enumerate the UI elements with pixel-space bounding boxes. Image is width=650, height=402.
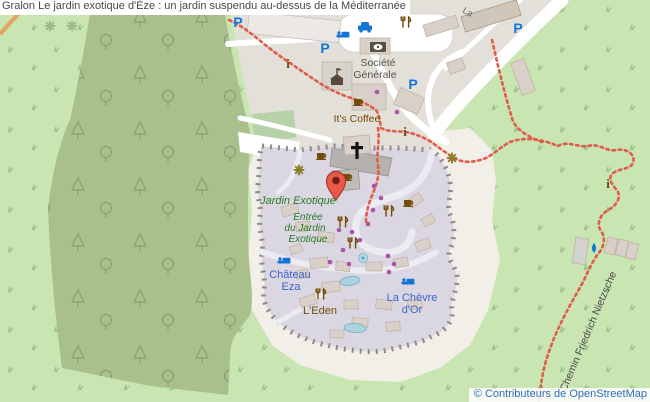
cafe-building: [352, 84, 386, 110]
restaurant-label: L'Eden: [303, 305, 337, 317]
attraction-icon: [295, 166, 304, 175]
parking-icon: P: [320, 40, 329, 56]
cafe-icon: [353, 99, 363, 106]
information-icon: i: [286, 56, 290, 71]
cafe-label: It's Coffee: [334, 113, 381, 125]
hotel-label: La Chèvre: [387, 292, 438, 304]
information-icon: i: [403, 124, 407, 139]
bank-icon: [370, 42, 386, 52]
hotel-label: Château: [269, 269, 311, 281]
bank-label: Société: [360, 57, 395, 69]
garden-entrance-label: Entrée: [293, 212, 323, 223]
map-widget: P P P P i i i: [0, 0, 650, 402]
parking-icon: P: [233, 14, 242, 30]
hotel-label: d'Or: [402, 304, 423, 316]
hotel-label: Eza: [282, 281, 302, 293]
village-area: [258, 135, 458, 352]
bank-label: Générale: [353, 69, 396, 81]
parking-icon: P: [408, 76, 417, 92]
information-icon: i: [606, 176, 610, 191]
cafe-icon: [316, 153, 326, 160]
page-title: Gralon Le jardin exotique d'Èze : un jar…: [0, 0, 410, 15]
parking-icon: P: [513, 20, 522, 36]
fountain-icon: [359, 254, 368, 263]
garden-label: Jardin Exotique: [259, 195, 336, 207]
attraction-icon: [448, 154, 457, 163]
map-canvas[interactable]: P P P P i i i: [0, 0, 650, 402]
osm-attribution-link[interactable]: © Contributeurs de OpenStreetMap: [469, 388, 650, 402]
cafe-icon: [403, 200, 413, 207]
garden-entrance-label: Exotique: [289, 234, 328, 245]
attraction-icon: [68, 22, 77, 31]
garden-entrance-label: du Jardin: [284, 223, 326, 234]
attraction-icon: [46, 22, 55, 31]
